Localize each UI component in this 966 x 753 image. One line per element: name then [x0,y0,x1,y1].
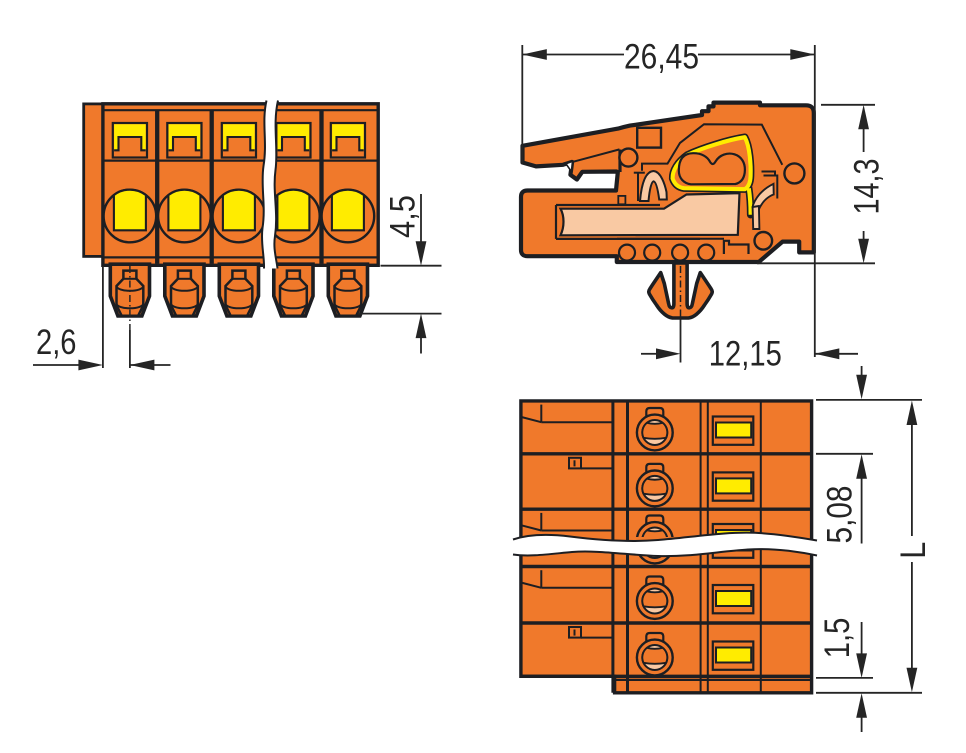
svg-text:26,45: 26,45 [624,37,699,77]
svg-text:2,6: 2,6 [36,322,77,362]
svg-text:1,5: 1,5 [817,618,857,659]
svg-text:5,08: 5,08 [820,486,860,544]
svg-text:L: L [893,542,933,559]
svg-text:4,5: 4,5 [383,195,423,238]
svg-text:12,15: 12,15 [709,333,782,373]
svg-text:14,3: 14,3 [847,159,887,215]
